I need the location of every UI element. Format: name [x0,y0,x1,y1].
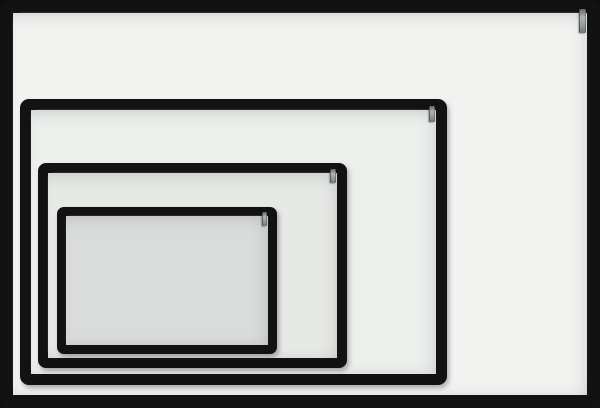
hanging-hook-icon [262,212,267,226]
whiteboard-frame-s [57,207,277,354]
nested-whiteboards-photo [0,0,600,408]
hanging-hook-icon [429,106,435,122]
hanging-hook-icon [330,169,336,183]
hanging-hook-icon [579,9,586,33]
